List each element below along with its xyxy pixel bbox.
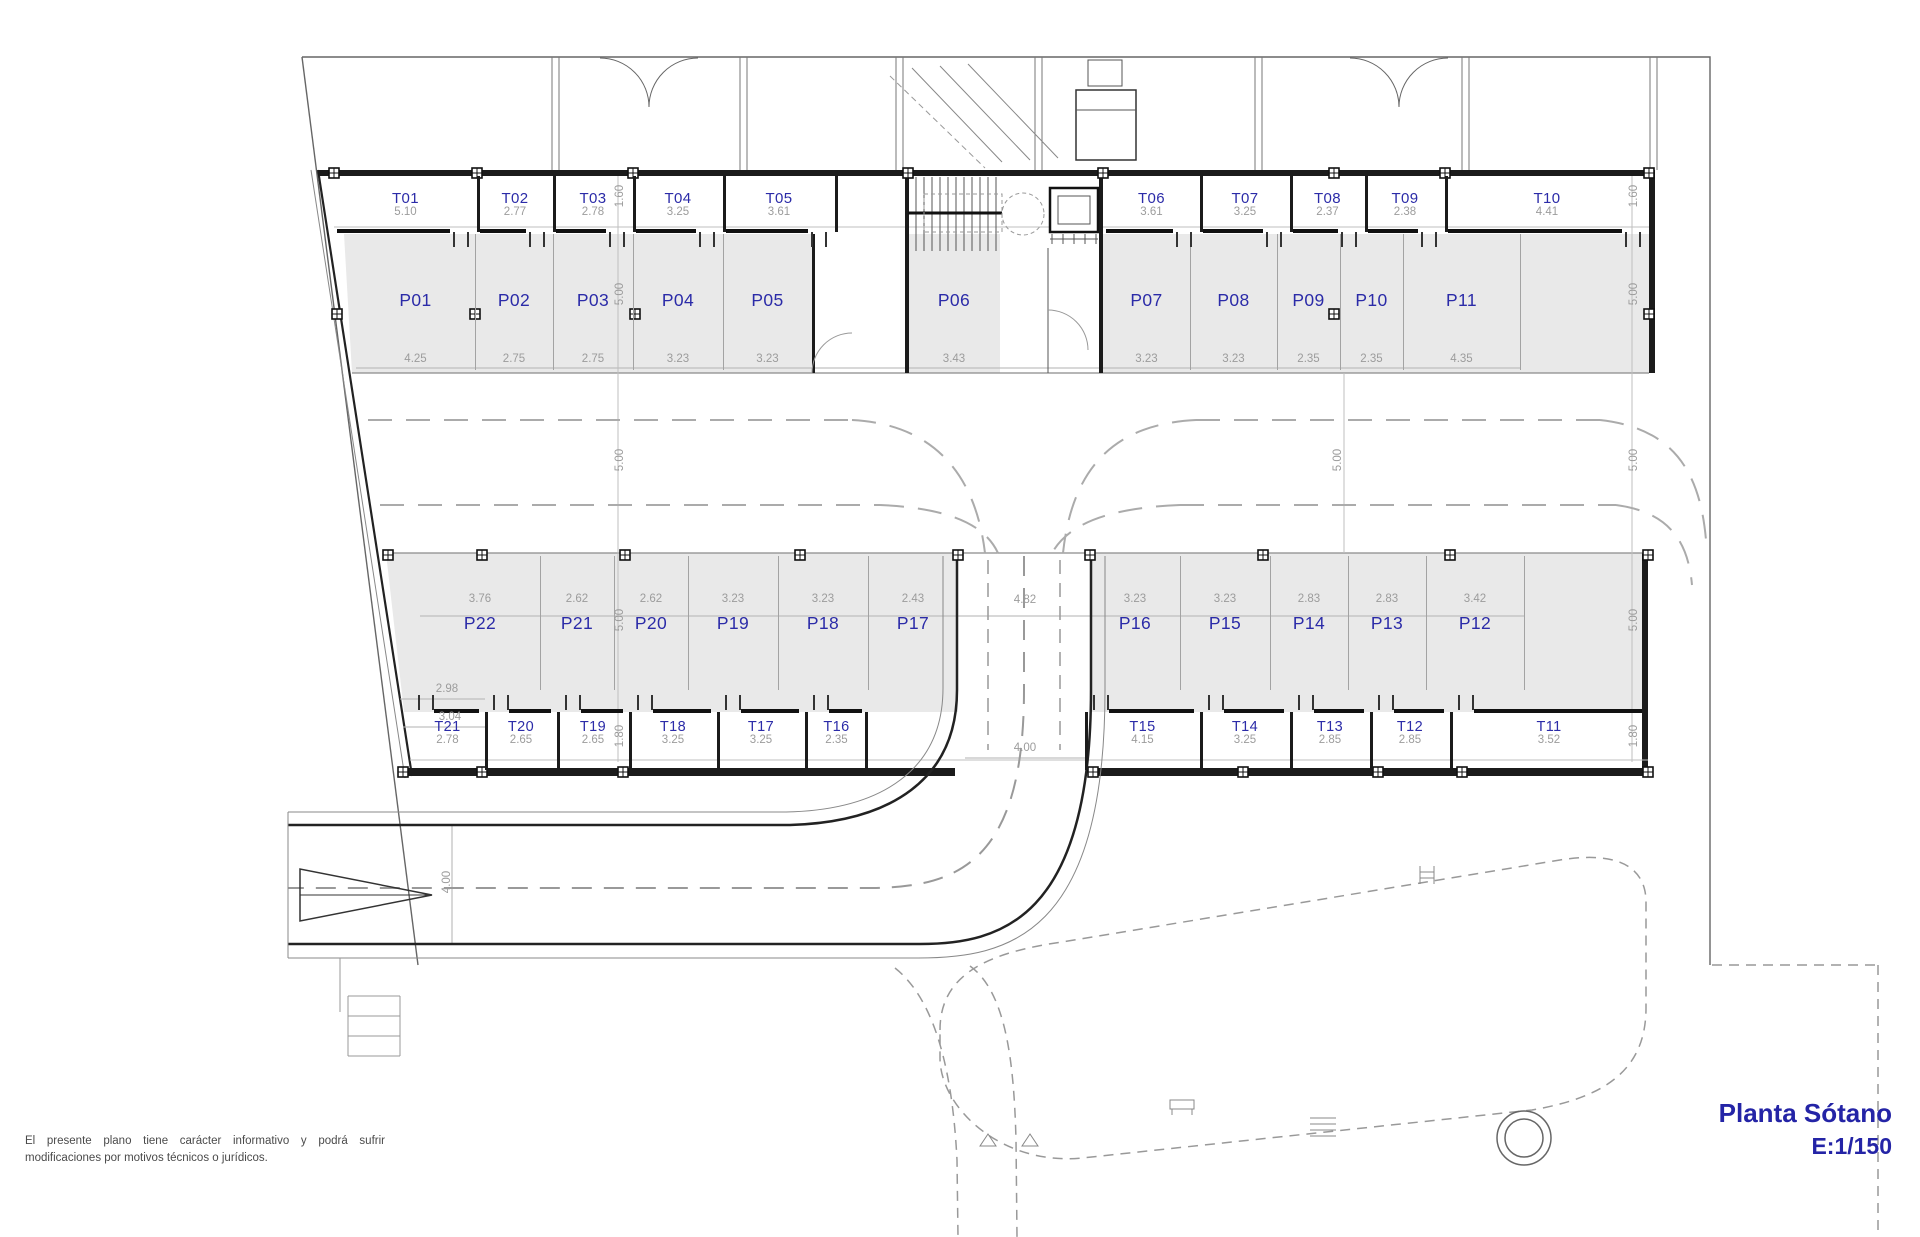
room-dimension: 3.61 [1140,206,1162,218]
parking-stall-botP-8: 2.83P14 [1270,553,1348,690]
door-leaf [739,695,741,710]
column-marker [1088,767,1098,777]
trastero-cell-topT-6: T073.25 [1200,176,1290,230]
door-leaf [507,695,509,710]
room-dimension: 2.43 [902,593,924,605]
room-label: P19 [717,613,749,634]
room-label: P10 [1355,290,1387,311]
trastero-cell-botT-9: T122.85 [1370,712,1450,768]
dim-t-height-bl: 1.80 [614,714,626,758]
room-label: P02 [498,290,530,311]
room-dimension: 2.75 [582,353,604,365]
room-dimension: 3.23 [667,353,689,365]
room-dimension: 3.23 [722,593,744,605]
trastero-cell-botT-10: T113.52 [1450,712,1648,768]
ramp-arrow [300,869,432,921]
trastero-cell-topT-0: T015.10 [334,176,477,230]
garden-circle [1497,1111,1551,1165]
trastero-cell-botT-1: T202.65 [485,712,557,768]
room-dimension: 2.85 [1319,734,1341,746]
scale-label: E:1/150 [1719,1133,1892,1160]
trastero-cell-topT-4: T053.61 [723,176,835,230]
room-label: P04 [662,290,694,311]
column-marker [398,767,408,777]
door-leaf [1378,695,1380,710]
door-leaf [1107,695,1109,710]
room-dimension: 2.37 [1316,206,1338,218]
door-leaf [1458,695,1460,710]
door-leaf [1392,695,1394,710]
disclaimer-text: El presente plano tiene carácter informa… [25,1133,385,1166]
room-dimension: 2.77 [504,206,526,218]
room-label: P15 [1209,613,1241,634]
column-marker [1644,309,1654,319]
dim-ramp-exit: 4.00 [990,742,1060,754]
room-dimension: 2.78 [582,206,604,218]
trastero-cell-topT-8: T092.38 [1365,176,1445,230]
room-label: T09 [1391,190,1418,207]
dim-t-height-right: 1.60 [1628,174,1640,218]
parking-stall-topP-3: P043.23 [633,234,723,373]
room-dimension: 2.83 [1298,593,1320,605]
door-leaf [418,695,420,710]
parking-stall-topP-4: P053.23 [723,234,812,373]
room-dimension: 3.25 [1234,206,1256,218]
parking-stall-topP-9: P102.35 [1340,234,1403,373]
room-dimension: 2.62 [640,593,662,605]
trastero-cell-topT-7: T082.37 [1290,176,1365,230]
room-label: T12 [1397,719,1423,735]
door-leaf [565,695,567,710]
parking-stall-topP-6: P073.23 [1103,234,1190,373]
pool-ladder-icon [1420,866,1434,884]
door-leaf [1472,695,1474,710]
parking-stall-botP-0: 3.76P22 [420,553,540,690]
parking-stall-botP-6: 3.23P16 [1090,553,1180,690]
column-marker [1643,550,1653,560]
door-leaf [1625,232,1627,247]
door-leaf [1208,695,1210,710]
room-dimension: 3.23 [756,353,778,365]
column-marker [1238,767,1248,777]
partition-wall [835,176,838,232]
room-dimension: 3.23 [1214,593,1236,605]
partition-wall [1524,556,1525,690]
dim-stall-depth-bl: 5.00 [614,598,626,642]
trastero-cell-botT-8: T132.85 [1290,712,1370,768]
parking-stall-botP-5: 2.43P17 [868,553,958,690]
title-block: Planta Sótano E:1/150 [1719,1098,1892,1160]
door-leaf [1298,695,1300,710]
room-label: T16 [823,719,849,735]
door-leaf [432,695,434,710]
bench-icon [1170,1100,1194,1109]
room-dimension: 4.35 [1450,353,1472,365]
door-leaf [813,695,815,710]
room-label: T05 [765,190,792,207]
room-dimension: 2.35 [1297,353,1319,365]
door-leaf [1312,695,1314,710]
dim-stall-depth-right: 5.00 [1628,272,1640,316]
room-label: T07 [1231,190,1258,207]
room-label: P18 [807,613,839,634]
trastero-cell-botT-3: T183.25 [629,712,717,768]
floor-plan: 1.60 5.00 5.00 5.00 1.80 1.60 5.00 5.00 … [0,0,1920,1237]
door-leaf [1222,695,1224,710]
dim-t-height-br: 1.80 [1628,714,1640,758]
room-dimension: 2.83 [1376,593,1398,605]
room-dimension: 2.35 [825,734,847,746]
dim-road-width: 4.00 [441,860,453,904]
dim-stall-depth-br: 5.00 [1628,598,1640,642]
disclaimer-line2: modificaciones por motivos técnicos o ju… [25,1152,268,1164]
room-dimension: 2.38 [1394,206,1416,218]
parking-stall-topP-0: P014.25 [356,234,475,373]
room-label: T06 [1138,190,1165,207]
exterior-top-details [552,57,1657,170]
parking-stall-topP-5: P063.43 [908,234,1000,373]
parking-stall-topP-10: P114.35 [1403,234,1520,373]
room-label: P03 [577,290,609,311]
trastero-cell-topT-9: T104.41 [1445,176,1649,230]
steps-icon [1310,1118,1336,1136]
door-leaf [825,232,827,247]
room-label: P22 [464,613,496,634]
room-dimension: 2.65 [582,734,604,746]
room-dimension: 3.61 [768,206,790,218]
room-label: T01 [392,190,419,207]
column-marker [1373,767,1383,777]
room-label: P21 [561,613,593,634]
room-dimension: 2.35 [1360,353,1382,365]
room-label: T18 [660,719,686,735]
room-label: P12 [1459,613,1491,634]
door-leaf [651,695,653,710]
room-dimension: 2.78 [436,734,458,746]
room-dimension: 3.42 [1464,593,1486,605]
room-label: T14 [1232,719,1258,735]
trastero-cell-topT-1: T022.77 [477,176,553,230]
room-label: P06 [938,290,970,311]
room-label: P05 [751,290,783,311]
room-dimension: 5.10 [394,206,416,218]
parking-stall-botP-1: 2.62P21 [540,553,614,690]
trastero-cell-botT-7: T143.25 [1200,712,1290,768]
room-label: P07 [1130,290,1162,311]
door-leaf [827,695,829,710]
dim-aisle-mid: 5.00 [1332,438,1344,482]
room-label: T04 [664,190,691,207]
page-title: Planta Sótano [1719,1098,1892,1129]
trastero-cell-topT-5: T063.61 [1103,176,1200,230]
room-label: T20 [508,719,534,735]
parking-stall-botP-3: 3.23P19 [688,553,778,690]
room-label: T11 [1536,719,1561,735]
room-label: T13 [1317,719,1343,735]
room-dimension: 3.23 [812,593,834,605]
room-dimension: 3.25 [750,734,772,746]
room-label: P13 [1371,613,1403,634]
dim-aisle-left: 5.00 [614,438,626,482]
column-marker [332,309,342,319]
room-dimension: 3.23 [1124,593,1146,605]
elevator [1050,188,1098,232]
dim-p22-sub2: 3.04 [415,711,485,723]
trastero-cell-botT-5: T162.35 [805,712,868,768]
room-label: P20 [635,613,667,634]
room-dimension: 2.85 [1399,734,1421,746]
trastero-cell-botT-4: T173.25 [717,712,805,768]
trastero-cell-topT-3: T043.25 [633,176,723,230]
room-label: T03 [579,190,606,207]
room-label: T10 [1533,190,1560,207]
room-dimension: 2.65 [510,734,532,746]
room-dimension: 3.25 [1234,734,1256,746]
parking-stall-topP-1: P022.75 [475,234,553,373]
room-dimension: 4.15 [1131,734,1153,746]
room-dimension: 2.62 [566,593,588,605]
dim-t-height-left: 1.60 [614,174,626,218]
room-dimension: 3.25 [667,206,689,218]
room-label: P11 [1446,290,1477,311]
door-leaf [725,695,727,710]
parking-stall-topP-7: P083.23 [1190,234,1277,373]
room-dimension: 4.41 [1536,206,1558,218]
column-marker [1457,767,1467,777]
garden-area [895,857,1878,1237]
room-dimension: 4.25 [404,353,426,365]
room-label: P01 [399,290,431,311]
column-marker [1643,767,1653,777]
parking-stall-botP-9: 2.83P13 [1348,553,1426,690]
column-marker [618,767,628,777]
room-dimension: 2.75 [503,353,525,365]
dim-ramp-width: 4.82 [990,594,1060,606]
parking-stall-botP-7: 3.23P15 [1180,553,1270,690]
door-leaf [493,695,495,710]
door-leaf [1639,232,1641,247]
room-label: P16 [1119,613,1151,634]
column-marker [903,168,913,178]
door-leaf [1093,695,1095,710]
partition-wall [1520,234,1521,370]
room-label: P08 [1217,290,1249,311]
room-label: P14 [1293,613,1325,634]
dim-aisle-right: 5.00 [1628,438,1640,482]
room-dimension: 3.25 [662,734,684,746]
column-marker [383,550,393,560]
room-label: T08 [1314,190,1341,207]
door-leaf [579,695,581,710]
room-dimension: 3.23 [1222,353,1244,365]
parking-stall-botP-4: 3.23P18 [778,553,868,690]
parking-stall-botP-10: 3.42P12 [1426,553,1524,690]
dim-p22-sub: 2.98 [412,683,482,695]
room-dimension: 3.52 [1538,734,1560,746]
room-label: T02 [501,190,528,207]
room-label: T19 [580,719,606,735]
pool-outline [940,857,1646,1158]
room-dimension: 3.23 [1135,353,1157,365]
parking-stall-topP-8: P092.35 [1277,234,1340,373]
room-label: T15 [1129,719,1155,735]
disclaimer-line1: El presente plano tiene carácter informa… [25,1135,385,1147]
trastero-cell-botT-6: T154.15 [1085,712,1200,768]
room-dimension: 3.43 [943,353,965,365]
dim-stall-depth-left: 5.00 [614,272,626,316]
room-label: P09 [1292,290,1324,311]
door-leaf [637,695,639,710]
room-dimension: 3.76 [469,593,491,605]
room-label: P17 [897,613,929,634]
room-label: T17 [748,719,774,735]
